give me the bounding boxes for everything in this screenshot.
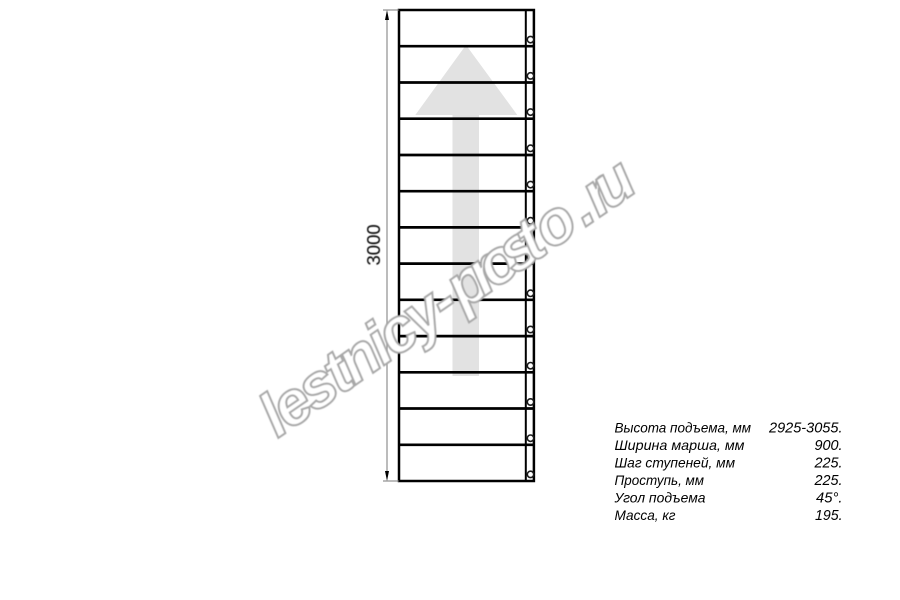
svg-text:225.: 225. [814,472,843,489]
svg-text:225.: 225. [814,454,843,471]
svg-text:Угол подъема: Угол подъема [614,489,706,505]
svg-text:45°.: 45°. [816,489,843,506]
svg-text:3000: 3000 [363,224,384,265]
svg-text:Масса, кг: Масса, кг [615,507,676,523]
svg-text:Высота подъема, мм: Высота подъема, мм [615,419,752,435]
svg-text:195.: 195. [815,507,843,524]
svg-text:900.: 900. [815,437,843,454]
svg-text:Проступь, мм: Проступь, мм [615,472,705,488]
svg-text:2925-3055.: 2925-3055. [768,419,842,436]
svg-text:Ширина марша, мм: Ширина марша, мм [615,437,745,453]
svg-text:Шаг ступеней, мм: Шаг ступеней, мм [615,454,736,470]
